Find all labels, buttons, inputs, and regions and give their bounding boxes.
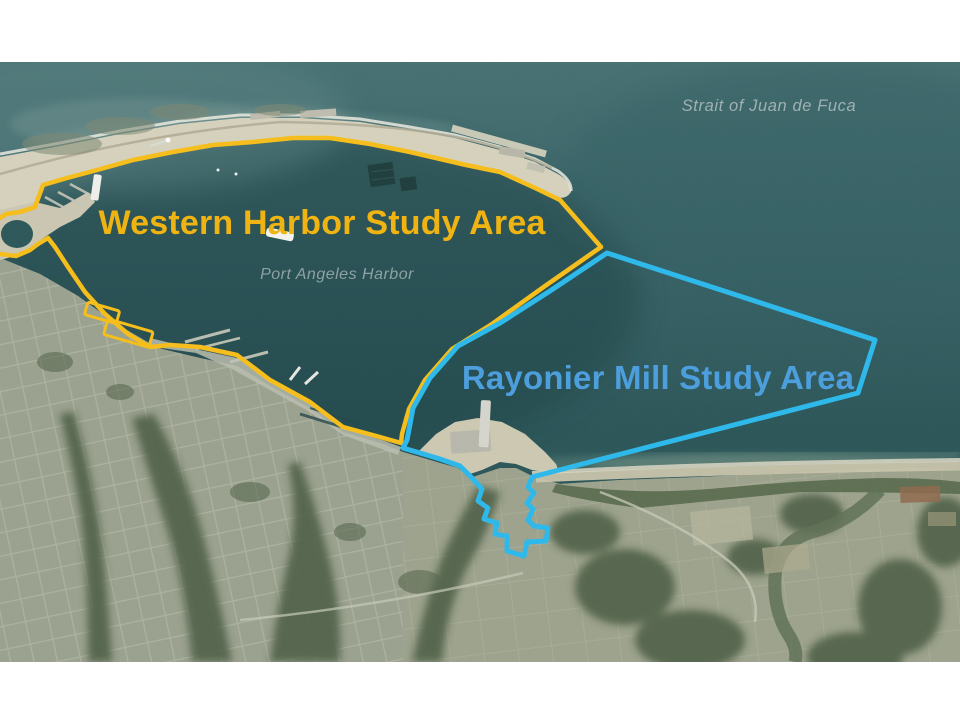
strait-label: Strait of Juan de Fuca: [682, 97, 857, 115]
harbor-label: Port Angeles Harbor: [260, 266, 414, 283]
slide-canvas: Strait of Juan de Fuca Port Angeles Harb…: [0, 0, 960, 720]
aerial-map: Strait of Juan de Fuca Port Angeles Harb…: [0, 62, 960, 662]
western-harbor-label: Western Harbor Study Area: [98, 204, 546, 242]
rayonier-mill-label: Rayonier Mill Study Area: [462, 359, 855, 396]
